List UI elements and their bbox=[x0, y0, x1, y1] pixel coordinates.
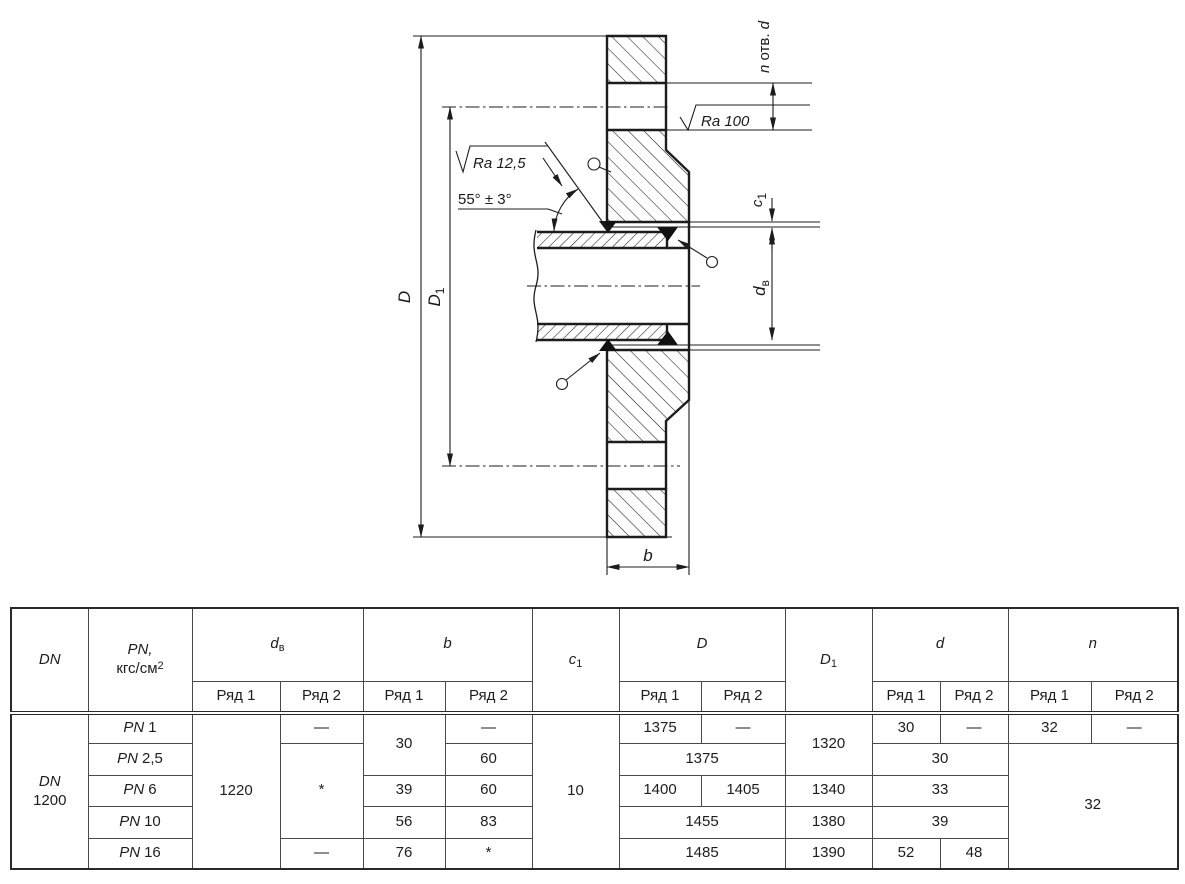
header-D1: D1 bbox=[785, 608, 872, 713]
header-dv-ryad2: Ряд 2 bbox=[280, 681, 363, 713]
cell-n-r2-pn1: — bbox=[1091, 713, 1178, 743]
cell-D-pn16: 1485 bbox=[619, 838, 785, 869]
header-D-ryad2: Ряд 2 bbox=[701, 681, 785, 713]
cell-d-pn6: 33 bbox=[872, 775, 1008, 806]
cell-pn-1: PN1 bbox=[88, 713, 192, 743]
angle-arc bbox=[554, 189, 578, 231]
table-row-pn1: DN1200 PN1 1220 — 30 — 10 1375 — 1320 30… bbox=[11, 713, 1178, 743]
cell-dv-r1: 1220 bbox=[192, 713, 280, 869]
dim-label-n-otv-d: n отв. d bbox=[756, 20, 773, 73]
header-n-ryad2: Ряд 2 bbox=[1091, 681, 1178, 713]
header-pn: PN,кгс/см2 bbox=[88, 608, 192, 713]
cell-D-r2-pn1: — bbox=[701, 713, 785, 743]
cell-b-r1-pn6: 39 bbox=[363, 775, 445, 806]
header-b: b bbox=[363, 608, 532, 681]
cell-b-r2-pn25: 60 bbox=[445, 743, 532, 775]
cell-D-pn10: 1455 bbox=[619, 806, 785, 838]
flange-section-drawing: D D1 c1 dв b n отв. d Ra 100 Ra 12,5 55°… bbox=[0, 0, 1185, 600]
cell-b-r2-pn16: * bbox=[445, 838, 532, 869]
dim-label-c1: c1 bbox=[749, 193, 769, 208]
header-d: d bbox=[872, 608, 1008, 681]
header-dv-ryad1: Ряд 1 bbox=[192, 681, 280, 713]
cell-b-r2-pn6: 60 bbox=[445, 775, 532, 806]
weld-leader-circle-top bbox=[707, 257, 718, 268]
cell-b-r1-pn16: 76 bbox=[363, 838, 445, 869]
weld-leader-circle-face bbox=[588, 158, 600, 170]
bevel-line bbox=[545, 142, 609, 231]
ra-face-label: Ra 100 bbox=[701, 113, 750, 130]
bevel-angle-label: 55° ± 3° bbox=[458, 191, 512, 208]
cell-D-r1-pn6: 1400 bbox=[619, 775, 701, 806]
cell-b-r2-pn1: — bbox=[445, 713, 532, 743]
cell-pn-16: PN16 bbox=[88, 838, 192, 869]
cell-b-r2-pn10: 83 bbox=[445, 806, 532, 838]
cell-d-r2-pn16: 48 bbox=[940, 838, 1008, 869]
dim-label-dv: dв bbox=[750, 280, 772, 296]
cell-d-pn25: 30 bbox=[872, 743, 1008, 775]
cell-dn: DN1200 bbox=[11, 713, 88, 869]
cell-d-r2-pn1: — bbox=[940, 713, 1008, 743]
cell-D1-pn6: 1340 bbox=[785, 775, 872, 806]
cell-c1: 10 bbox=[532, 713, 619, 869]
cell-dv-r2-pn1: — bbox=[280, 713, 363, 743]
cell-D1-pn10: 1380 bbox=[785, 806, 872, 838]
header-dv: dв bbox=[192, 608, 363, 681]
cell-b-r1-pn10: 56 bbox=[363, 806, 445, 838]
header-n: n bbox=[1008, 608, 1178, 681]
cell-D-pn25: 1375 bbox=[619, 743, 785, 775]
header-c1: c1 bbox=[532, 608, 619, 713]
header-b-ryad2: Ряд 2 bbox=[445, 681, 532, 713]
header-n-ryad1: Ряд 1 bbox=[1008, 681, 1091, 713]
header-dn: DN bbox=[11, 608, 88, 713]
cell-D1-pn16: 1390 bbox=[785, 838, 872, 869]
header-b-ryad1: Ряд 1 bbox=[363, 681, 445, 713]
dim-label-D: D bbox=[395, 291, 414, 303]
cell-pn-6: PN6 bbox=[88, 775, 192, 806]
cell-b-r1-pn1: 30 bbox=[363, 713, 445, 775]
cell-n-r1-pn1: 32 bbox=[1008, 713, 1091, 743]
header-D-ryad1: Ряд 1 bbox=[619, 681, 701, 713]
dim-label-D1: D1 bbox=[425, 287, 447, 306]
cell-dv-r2-pn16: — bbox=[280, 838, 363, 869]
drawing-labels: D D1 c1 dв b n отв. d Ra 100 Ra 12,5 55°… bbox=[395, 20, 773, 565]
cell-D1-pn1: 1320 bbox=[785, 713, 872, 775]
header-D: D bbox=[619, 608, 785, 681]
ra-bevel-label: Ra 12,5 bbox=[473, 155, 526, 172]
cell-pn-10: PN10 bbox=[88, 806, 192, 838]
cell-dv-r2-mid: * bbox=[280, 743, 363, 838]
dim-label-b: b bbox=[643, 546, 652, 565]
flange-dimensions-table: DN PN,кгс/см2 dв b c1 D D1 d n Ряд 1 Ряд… bbox=[10, 607, 1179, 870]
header-d-ryad2: Ряд 2 bbox=[940, 681, 1008, 713]
cell-d-r1-pn1: 30 bbox=[872, 713, 940, 743]
cell-n-rest: 32 bbox=[1008, 743, 1178, 869]
cell-d-pn10: 39 bbox=[872, 806, 1008, 838]
weld-leader-circle-bottom bbox=[557, 379, 568, 390]
cell-D-r2-pn6: 1405 bbox=[701, 775, 785, 806]
header-d-ryad1: Ряд 1 bbox=[872, 681, 940, 713]
cell-D-r1-pn1: 1375 bbox=[619, 713, 701, 743]
cell-pn-25: PN2,5 bbox=[88, 743, 192, 775]
cell-d-r1-pn16: 52 bbox=[872, 838, 940, 869]
